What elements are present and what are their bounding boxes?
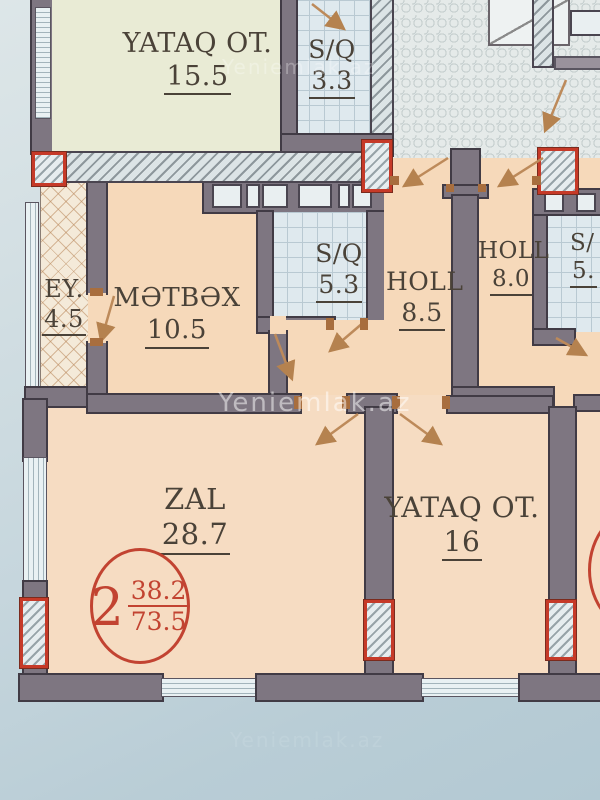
label-holl-85: HOLL 8.5	[386, 268, 458, 331]
label-ey: EY. 4.5	[38, 276, 90, 336]
watermark-middle: Yeniemlak.az	[218, 388, 412, 418]
watermark-top: Yeniemlak.az	[222, 55, 376, 79]
floorplan-photo: YATAQ OT. 15.5 S/Q 3.3 EY. 4.5 MƏTBƏX 10…	[0, 0, 600, 800]
unit-badge: 2 38.2 73.5	[90, 548, 190, 664]
label-yataq-16: YATAQ OT. 16	[382, 492, 542, 561]
label-sq-53: S/Q 5.3	[306, 240, 372, 303]
label-zal: ZAL 28.7	[140, 483, 250, 555]
label-metbex: MƏTBƏX 10.5	[112, 284, 242, 349]
label-sq-neighbor: S/ 5.	[570, 230, 600, 288]
watermark-bottom: Yeniemlak.az	[230, 728, 384, 752]
unit-total-area: 73.5	[128, 607, 190, 636]
unit-living-area: 38.2	[128, 577, 190, 608]
label-holl-80: HOLL 8.0	[478, 238, 544, 296]
unit-rooms-count: 2	[91, 582, 124, 634]
unit-areas: 38.2 73.5	[128, 577, 190, 636]
